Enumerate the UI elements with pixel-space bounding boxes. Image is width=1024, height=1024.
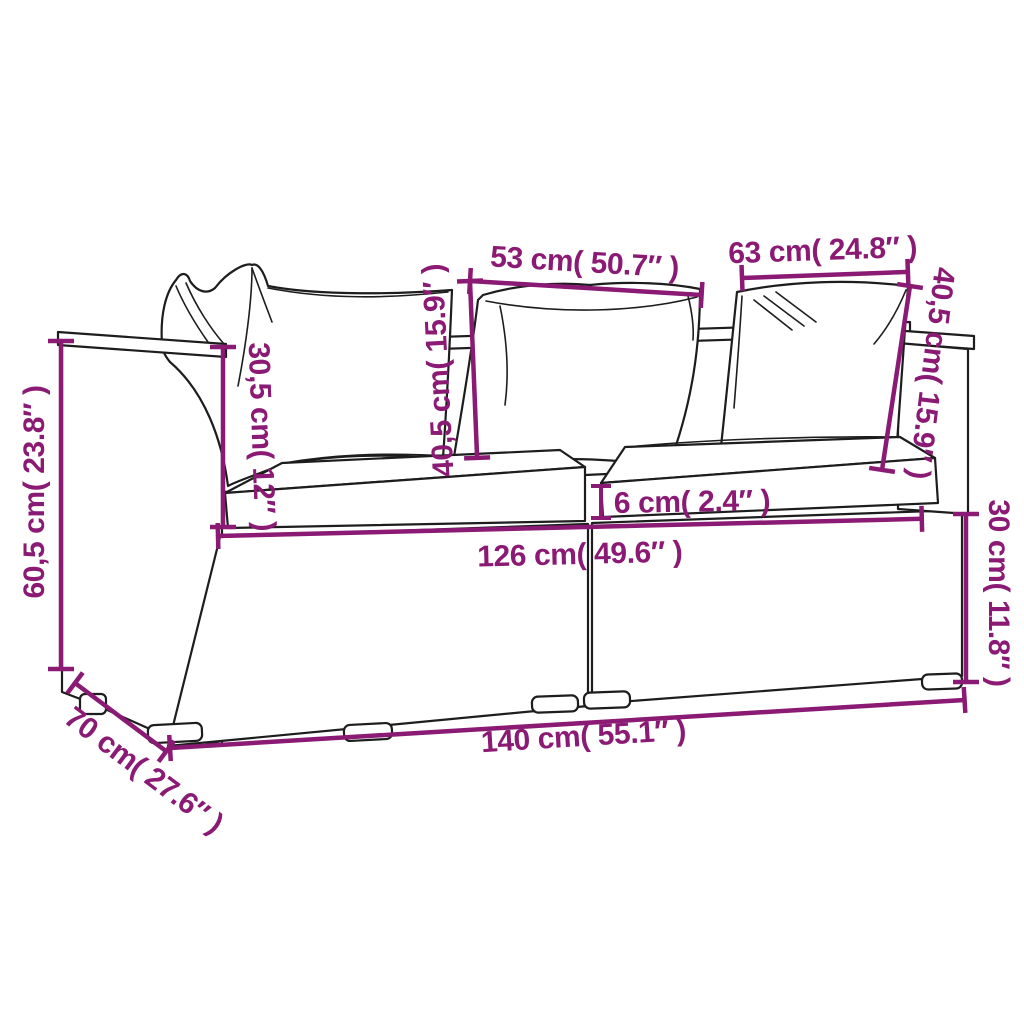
dimension-diagram: 53 cm( 50.7″ ) 63 cm( 24.8″ ) 40,5 cm( 1… — [0, 0, 1024, 1024]
back-pillow-right — [720, 282, 908, 458]
sofa-illustration — [58, 264, 974, 746]
dim-label-seat-cushion-thickness: 6 cm( 2.4″ ) — [614, 484, 771, 520]
sofa-foot — [584, 691, 631, 709]
sofa-dimension-svg: 53 cm( 50.7″ ) 63 cm( 24.8″ ) 40,5 cm( 1… — [0, 0, 1024, 1024]
dim-label-armrest-height: 30,5 cm( 12″ ) — [242, 342, 282, 532]
dim-label-total-height: 60,5 cm( 23.8″ ) — [18, 385, 51, 598]
sofa-foot — [532, 695, 579, 713]
sofa-foot — [148, 723, 203, 744]
dim-label-total-width: 140 cm( 55.1″ ) — [480, 714, 687, 759]
dim-label-inner-width: 126 cm( 49.6″ ) — [477, 536, 683, 574]
dim-label-back-cushion-right-width: 63 cm( 24.8″ ) — [728, 231, 918, 271]
dim-label-back-cushion-left-width: 53 cm( 50.7″ ) — [489, 240, 679, 284]
dim-label-seat-height: 30 cm( 11.8″ ) — [982, 499, 1015, 686]
